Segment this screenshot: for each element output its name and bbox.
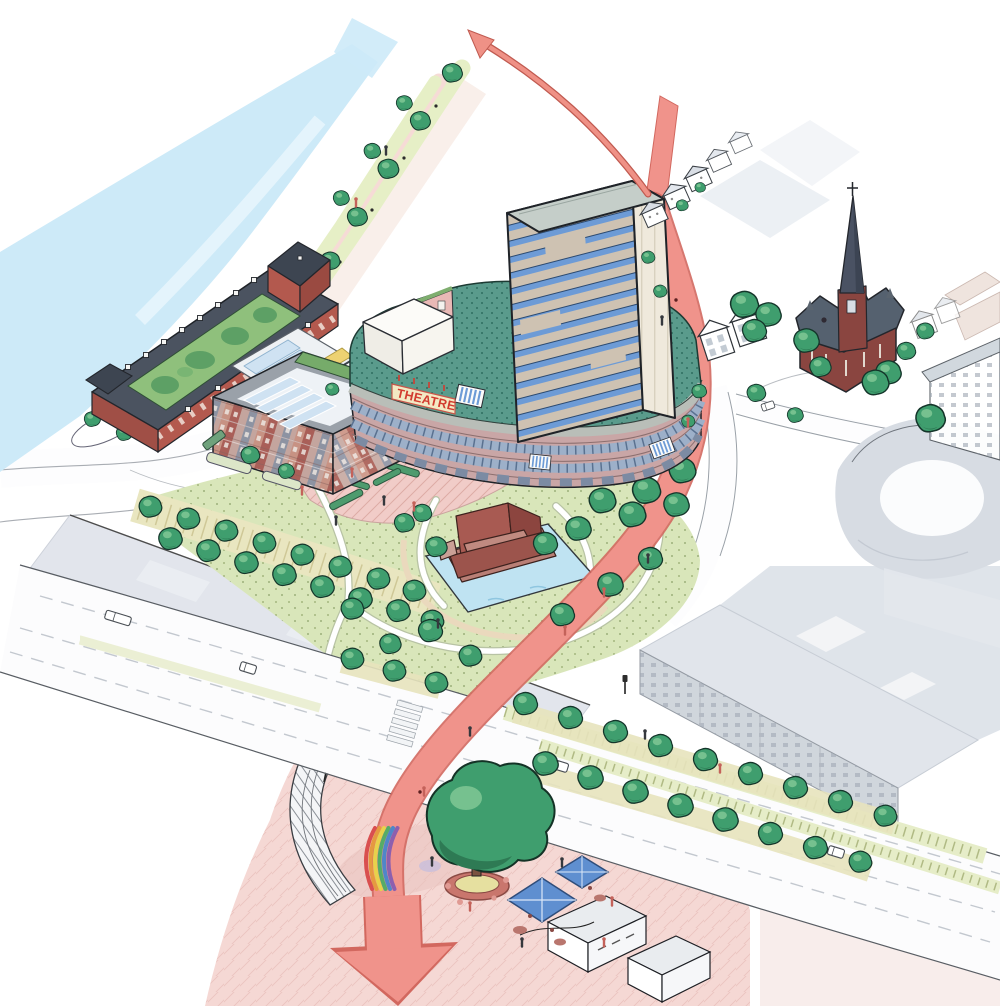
route-arrow-north	[468, 30, 648, 194]
masterplan-canvas: THEATRE	[0, 0, 1000, 1006]
church-tower	[838, 286, 867, 352]
masterplan-illustration: THEATRE	[0, 0, 1000, 1006]
arrowhead-icon	[468, 30, 494, 58]
